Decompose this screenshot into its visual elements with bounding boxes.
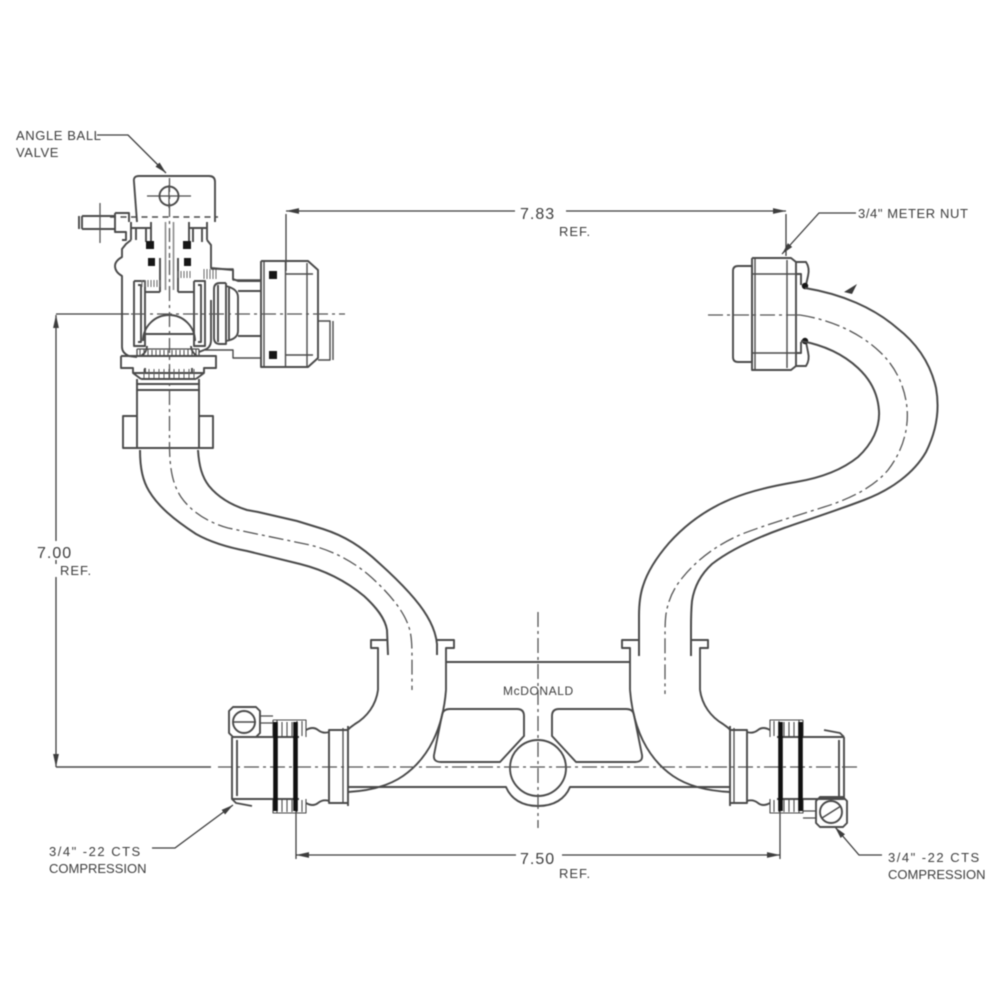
svg-text:VALVE: VALVE [16, 145, 59, 160]
svg-text:ANGLE BALL: ANGLE BALL [16, 128, 102, 143]
svg-text:3/4" METER NUT: 3/4" METER NUT [858, 206, 969, 221]
svg-text:3/4" -22 CTS: 3/4" -22 CTS [49, 844, 142, 859]
svg-text:7.50: 7.50 [520, 851, 555, 868]
svg-text:COMPRESSION: COMPRESSION [888, 867, 986, 882]
svg-text:REF.: REF. [559, 224, 591, 239]
svg-text:3/4" -22 CTS: 3/4" -22 CTS [888, 850, 981, 865]
svg-text:REF.: REF. [60, 563, 92, 578]
svg-text:COMPRESSION: COMPRESSION [49, 861, 147, 876]
svg-text:7.00: 7.00 [37, 545, 72, 562]
svg-text:7.83: 7.83 [520, 206, 555, 223]
svg-text:REF.: REF. [559, 866, 591, 881]
